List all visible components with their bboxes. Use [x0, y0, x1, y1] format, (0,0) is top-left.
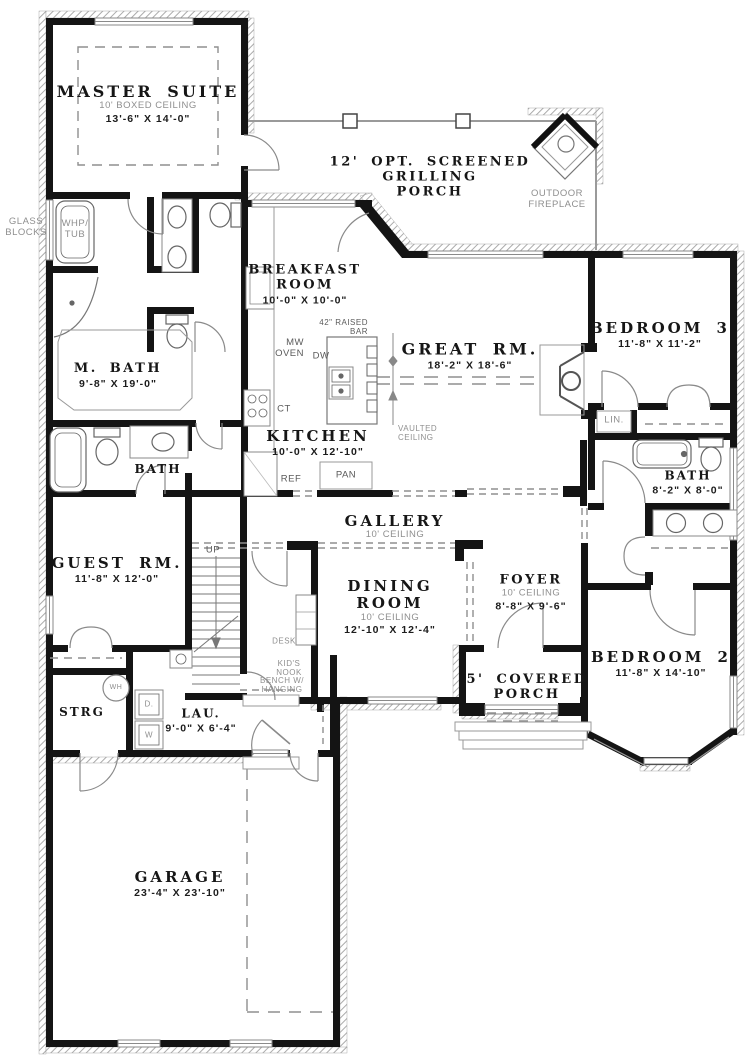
room-label-great-rm: GREAT RM. 18'-2" X 18'-6" [402, 340, 539, 371]
room-label-master-suite: MASTER SUITE 10' BOXED CEILING 13'-6" X … [57, 83, 240, 125]
porch-column [343, 114, 357, 128]
sink [667, 514, 686, 533]
annotation-outdoor-fireplace: OUTDOOR FIREPLACE [528, 189, 585, 211]
room-label-strg: STRG [59, 706, 105, 720]
annotation-raised-bar: 42" RAISED BAR [319, 318, 368, 336]
annotation-dw: DW [313, 352, 330, 363]
vaulted-ceiling-arrows [389, 333, 397, 425]
desk [296, 595, 316, 645]
room-label-breakfast: BREAKFAST ROOM 10'-0" X 10'-0" [248, 264, 361, 307]
toilet [701, 447, 721, 471]
bay-window [588, 731, 733, 767]
annotation-glass-blocks: GLASS BLOCKS [5, 217, 47, 239]
room-label-bath1: BATH [134, 463, 181, 477]
room-label-kitchen: KITCHEN 10'-0" X 12'-10" [266, 428, 369, 458]
annotation-up: UP [206, 546, 220, 557]
porch-column [456, 114, 470, 128]
toilet-tank [699, 438, 723, 447]
outdoor-fireplace [533, 115, 597, 179]
room-label-covered-porch: 5' COVERED PORCH [467, 673, 588, 703]
toilet-tank [231, 203, 241, 227]
room-label-lau: LAU. 9'-0" X 6'-4" [165, 708, 236, 735]
room-label-bath2: BATH 8'-2" X 8'-0" [652, 470, 723, 497]
bench [243, 695, 299, 706]
annotation-bench: BENCH W/ HANGING [260, 676, 304, 694]
room-label-bedroom2: BEDROOM 2 11'-8" X 14'-10" [591, 649, 731, 679]
toilet [96, 439, 118, 465]
ceiling-note: 10' BOXED CEILING [57, 101, 240, 112]
toilet [167, 324, 187, 348]
toilet-tank [94, 428, 120, 437]
sink [168, 206, 186, 228]
double-vanity [653, 510, 737, 536]
annotation-vaulted-ceiling: VAULTED CEILING [398, 424, 437, 442]
porch-steps [455, 722, 591, 731]
room-label-dining: DINING ROOM 10' CEILING 12'-10" X 12'-4" [344, 578, 436, 636]
annotation-pan: PAN [336, 471, 356, 482]
sink [168, 246, 186, 268]
great-room-fireplace [540, 345, 584, 415]
annotation-ct: CT [277, 405, 291, 416]
toilet-tank [166, 315, 188, 324]
room-label-m-bath: M. BATH 9'-8" X 19'-0" [74, 362, 162, 390]
cooktop [244, 390, 270, 426]
room-dims: 13'-6" X 14'-0" [57, 113, 240, 125]
annotation-whp-tub: WHP/ TUB [62, 219, 89, 241]
room-label-grilling-porch: 12' OPT. SCREENED GRILLING PORCH [330, 156, 531, 201]
annotation-kids-nook: KID'S NOOK [276, 659, 302, 677]
room-name: MASTER SUITE [57, 83, 240, 101]
sink [704, 514, 723, 533]
annotation-washer: W [145, 730, 153, 739]
sink [152, 433, 174, 451]
annotation-ref: REF [281, 475, 302, 486]
room-label-guest: GUEST RM. 11'-8" X 12'-0" [52, 555, 183, 585]
floor-plan: MASTER SUITE 10' BOXED CEILING 13'-6" X … [0, 0, 750, 1058]
toilet [210, 203, 230, 227]
room-label-bedroom3: BEDROOM 3 11'-8" X 11'-2" [590, 320, 730, 350]
annotation-mw-oven: MW OVEN [275, 338, 304, 360]
annotation-desk: DESK [272, 636, 296, 645]
room-label-foyer: FOYER 10' CEILING 8'-8" X 9'-6" [495, 574, 566, 613]
fixtures [50, 199, 737, 769]
shower [54, 277, 98, 337]
stairs [192, 556, 240, 684]
room-label-garage: GARAGE 23'-4" X 23'-10" [134, 869, 226, 899]
annotation-lin: LIN. [604, 416, 623, 427]
room-label-gallery: GALLERY 10' CEILING [345, 513, 446, 541]
annotation-wh: WH [110, 684, 123, 692]
annotation-dryer: D. [145, 699, 154, 708]
